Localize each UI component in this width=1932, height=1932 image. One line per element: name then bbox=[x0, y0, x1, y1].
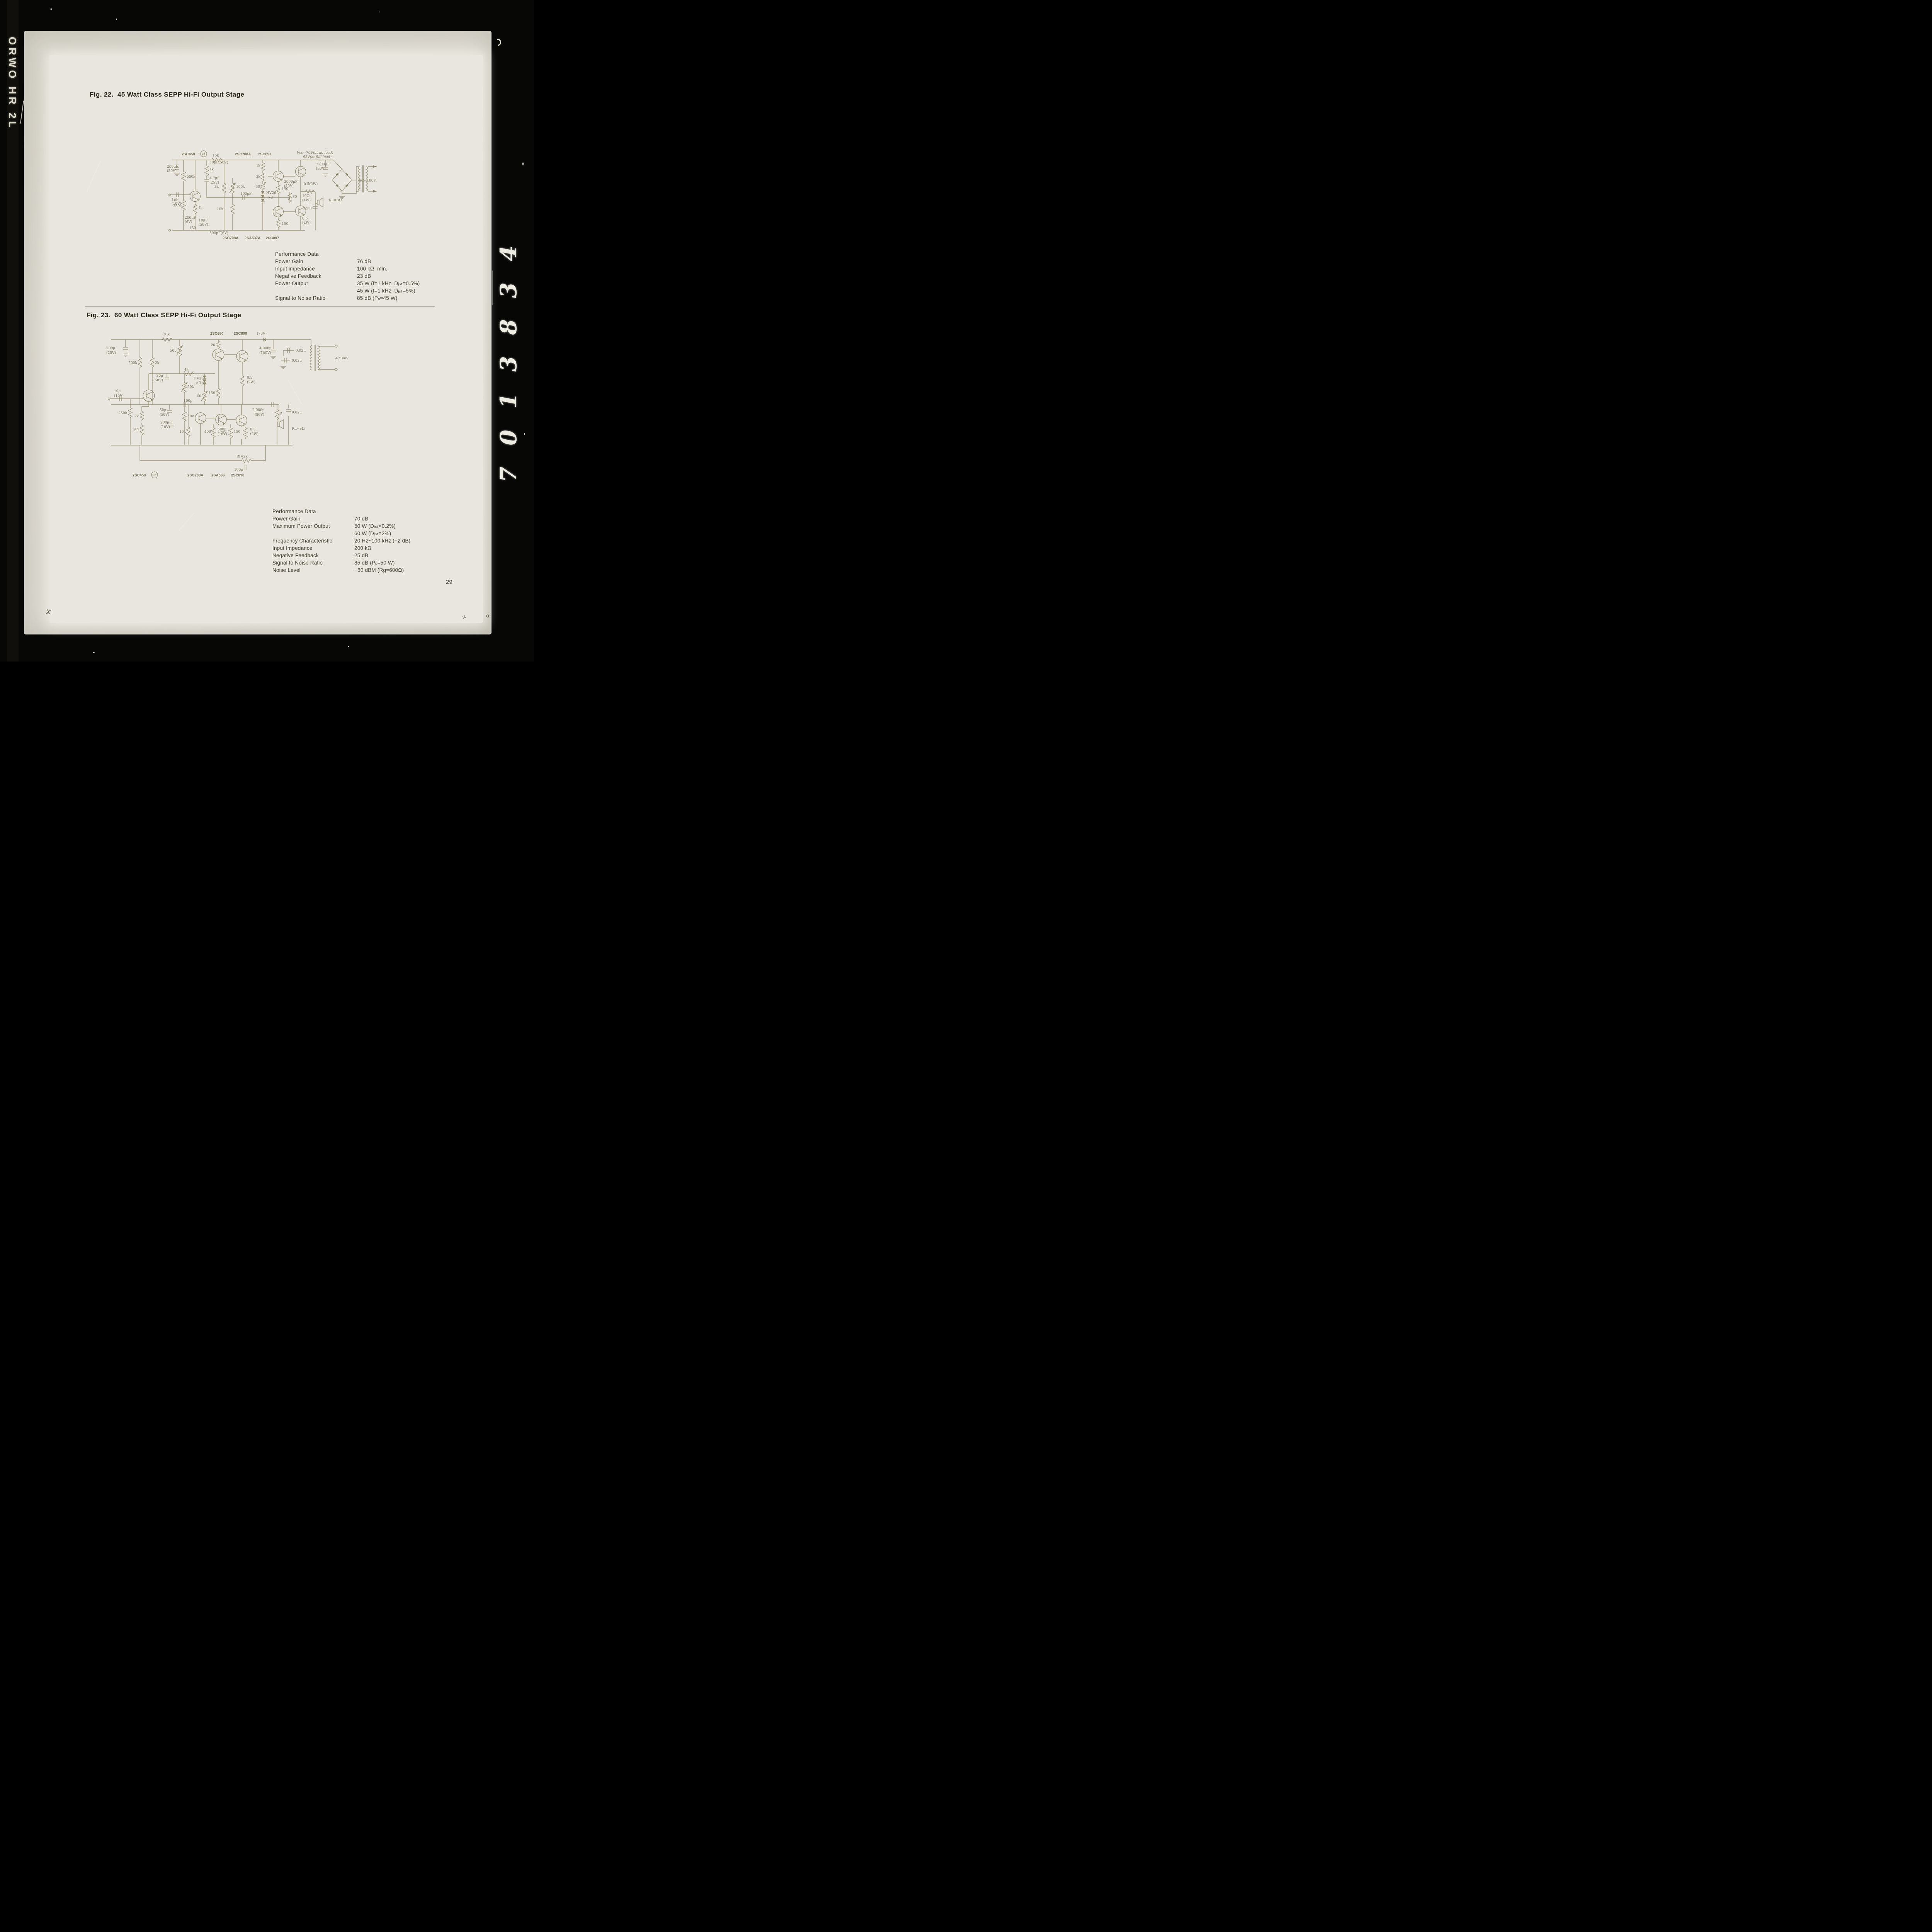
label-200uF: 200μF bbox=[160, 421, 172, 425]
transformer-primary bbox=[359, 167, 361, 179]
label-500u: 500μ bbox=[218, 428, 226, 432]
label-500k: 500k bbox=[187, 175, 196, 179]
label-2k: 2k bbox=[256, 175, 261, 179]
label-2k2: 2k bbox=[134, 415, 139, 418]
label-500: 500 bbox=[170, 349, 177, 353]
capacitor-4000u bbox=[271, 350, 276, 352]
label-ac100: AC=100V bbox=[358, 179, 376, 183]
transistor-2sa537a bbox=[273, 207, 284, 217]
label-4k: 4k bbox=[184, 368, 189, 372]
transistor-2sc680 bbox=[213, 349, 224, 361]
label-15k: 15k bbox=[213, 154, 219, 158]
label-2000u: 2,000μ bbox=[252, 408, 265, 412]
label-2sc898-top: 2SC898 bbox=[234, 332, 247, 336]
label-2000uF: 2000μF bbox=[284, 180, 298, 184]
capacitor-200uF bbox=[170, 425, 174, 427]
label-20: 20 bbox=[211, 344, 216, 347]
label-100pF: 100pF bbox=[240, 192, 252, 196]
transformer-secondary bbox=[366, 167, 368, 179]
film-stock-label: ORWO HR 2L bbox=[6, 37, 18, 130]
pot-arrow-50k bbox=[181, 382, 187, 392]
transistor-2sc898-upper bbox=[236, 350, 248, 362]
label-200u-v: (25V) bbox=[106, 351, 116, 355]
label-250k: 250k bbox=[118, 412, 127, 415]
resistor-5 bbox=[275, 408, 279, 421]
resistor-1k-top bbox=[261, 162, 265, 172]
film-speck bbox=[522, 162, 524, 165]
label-50uF: 50μF(50V) bbox=[209, 160, 228, 165]
film-speck bbox=[93, 652, 95, 653]
perf-row: Power Gain76 dB bbox=[275, 258, 445, 265]
output-arrow bbox=[373, 190, 377, 192]
label-150-right: 150 bbox=[234, 430, 240, 434]
label-rl: RL=8Ω bbox=[329, 199, 342, 202]
page-number: 29 bbox=[446, 579, 452, 585]
capacitor-4.7uF bbox=[204, 179, 209, 181]
label-002c: 0.02μ bbox=[292, 411, 302, 415]
resistor-150-right bbox=[229, 427, 233, 439]
resistor-20 bbox=[216, 340, 220, 349]
film-speck bbox=[379, 12, 380, 12]
label-0.5-b-v: (2W) bbox=[302, 221, 311, 225]
label-50: 50 bbox=[256, 185, 260, 189]
label-rf: Rf=2k bbox=[236, 455, 248, 459]
capacitor-0.02-c bbox=[286, 410, 291, 412]
resistor-0.5-2w-upper bbox=[240, 375, 244, 387]
capacitor-100p-feedback bbox=[245, 465, 247, 470]
label-l6: L6 bbox=[202, 152, 206, 156]
label-bottom-2sc458: 2SC458 bbox=[133, 473, 146, 478]
pot-arrow-500 bbox=[177, 345, 183, 355]
label-500k: 500k bbox=[128, 361, 137, 365]
perf-row: 60 W (Dᵢₛₜ=2%) bbox=[272, 530, 442, 537]
label-150-in: 150 bbox=[189, 226, 196, 230]
resistor-10k bbox=[186, 426, 190, 438]
label-100p-inner: 100p bbox=[184, 399, 192, 403]
label-002b: 0.02μ bbox=[292, 359, 302, 363]
label-2000u-v: (80V) bbox=[255, 413, 264, 417]
label-ac100v: AC100V bbox=[335, 357, 349, 361]
label-1k-c: 1k bbox=[256, 164, 261, 168]
label-1k-b: 1k bbox=[198, 206, 203, 210]
label-500uF: 500μF(6V) bbox=[209, 231, 228, 235]
label-150-b: 150 bbox=[282, 222, 288, 226]
transformer-secondary bbox=[318, 345, 320, 358]
transistor-2sc708a bbox=[195, 413, 206, 423]
resistor-1k-emitter bbox=[193, 203, 197, 215]
perf-row: Frequency Characteristic20 Hz~100 kHz (−… bbox=[272, 537, 442, 544]
transistor-2sc458-input bbox=[143, 390, 155, 401]
perf-row: Signal to Noise Ratio85 dB (Pₒ=45 W) bbox=[275, 294, 445, 302]
label-10k: 10k bbox=[179, 430, 186, 434]
label-0.5-2w-a: 0.5(2W) bbox=[304, 182, 318, 186]
label-30u: 30μ bbox=[156, 374, 163, 378]
bridge-rectifier bbox=[332, 169, 352, 191]
transformer-primary bbox=[310, 345, 312, 358]
transistor-2sc708a-upper bbox=[273, 171, 284, 182]
label-200u: 200μ bbox=[106, 347, 115, 350]
perf-row: Power Gain70 dB bbox=[272, 515, 442, 522]
label-10uF-v: (50V) bbox=[199, 223, 208, 227]
ground-symbol bbox=[174, 173, 180, 175]
resistor-150-upper bbox=[216, 387, 220, 400]
resistor-2k bbox=[150, 356, 154, 369]
label-x3: ×3 bbox=[196, 381, 201, 385]
label-4000u-v: (100V) bbox=[259, 351, 271, 355]
label-100k: 100k bbox=[236, 185, 245, 189]
resistor-2k bbox=[261, 172, 265, 182]
label-10ohm-v: (1W) bbox=[302, 198, 311, 202]
label-60: 60 bbox=[197, 395, 202, 398]
perf-row: Negative Feedback23 dB bbox=[275, 272, 445, 280]
label-4.7uF: 4.7μF bbox=[209, 177, 219, 180]
label-50u: 50μ bbox=[160, 408, 166, 412]
label-2sc708a-top: 2SC708A bbox=[235, 152, 251, 156]
label-150-upper: 150 bbox=[209, 391, 215, 395]
label-05a-v: (2W) bbox=[247, 380, 255, 384]
ac-terminal bbox=[335, 345, 337, 347]
output-arrow bbox=[373, 165, 377, 168]
label-4.7uF-v: (25V) bbox=[209, 180, 219, 185]
label-bottom-2sc708a: 2SC708A bbox=[223, 236, 238, 240]
corner-mark-o: o bbox=[486, 613, 489, 619]
label-200uF-v: (50V) bbox=[167, 169, 177, 173]
resistor-rf bbox=[240, 459, 253, 463]
resistor-10k bbox=[231, 203, 235, 216]
fig23-title: Fig. 23. 60 Watt Class SEPP Hi-Fi Output… bbox=[87, 311, 241, 319]
film-frame-number-handwritten: 7013834 bbox=[495, 224, 522, 483]
film-scratch bbox=[20, 100, 24, 124]
resistor-150-upper bbox=[276, 184, 280, 195]
transistor-2sc898-lower bbox=[236, 415, 247, 426]
input-terminal bbox=[108, 398, 110, 400]
performance-heading: Performance Data bbox=[272, 508, 442, 515]
perf-row: Signal to Noise Ratio85 dB (Pₒ=50 W) bbox=[272, 559, 442, 566]
document-page: Fig. 22. 45 Watt Class SEPP Hi-Fi Output… bbox=[24, 31, 492, 634]
label-10u: 10μ bbox=[114, 389, 121, 393]
label-4000u: 4,000μ bbox=[259, 347, 272, 350]
film-scratch bbox=[492, 270, 493, 305]
label-50k-a: 50k bbox=[187, 385, 194, 389]
performance-heading: Performance Data bbox=[275, 250, 445, 258]
perf-row: Maximum Power Output50 W (Dᵢₛₜ=0.2%) bbox=[272, 522, 442, 530]
rail-diode bbox=[264, 338, 266, 342]
label-2sc680: 2SC680 bbox=[210, 332, 223, 336]
diode-hv26-3 bbox=[202, 383, 206, 385]
film-speck bbox=[116, 19, 117, 20]
label-bottom-l6: L6 bbox=[153, 473, 156, 477]
label-76v: (76V) bbox=[257, 332, 267, 336]
fig22-title: Fig. 22. 45 Watt Class SEPP Hi-Fi Output… bbox=[90, 91, 244, 99]
resistor-3k bbox=[222, 182, 226, 194]
resistor-50k-b bbox=[182, 410, 186, 423]
speaker-symbol bbox=[278, 420, 284, 429]
film-speck bbox=[524, 433, 525, 435]
resistor-500k bbox=[182, 170, 185, 183]
label-2200uF-v: (80V) bbox=[316, 167, 326, 171]
label-500u-v: (10V) bbox=[218, 432, 227, 436]
resistor-150-lower bbox=[276, 219, 280, 228]
resistor-500k bbox=[138, 356, 142, 369]
film-photo-frame: ORWO HR 2L 7013834 Fig. 22. 45 Watt Clas… bbox=[0, 0, 534, 662]
capacitor-50u bbox=[167, 410, 172, 412]
resistor-250k bbox=[128, 406, 132, 419]
perf-row: 45 W (f=1 kHz, Dᵢₛₜ=5%) bbox=[275, 287, 445, 294]
ac-terminal bbox=[335, 368, 337, 371]
ground-symbol bbox=[323, 174, 328, 176]
film-speck bbox=[50, 9, 52, 10]
perf-row: Input Impedance200 kΩ bbox=[272, 544, 442, 552]
diode-hv26-1 bbox=[261, 191, 265, 194]
fig22-performance: Performance Data Power Gain76 dB Input i… bbox=[275, 250, 445, 302]
fig22-schematic: 2SC458 L6 15k 2SC708A 2SC897 Vcc=70V(at … bbox=[166, 149, 377, 244]
label-05b: 0.5 bbox=[250, 428, 256, 432]
perf-row: Negative Feedback25 dB bbox=[272, 552, 442, 559]
label-vcc-line2: 62V(at full load) bbox=[303, 155, 332, 159]
transformer-primary2 bbox=[310, 358, 312, 370]
label-200uF-v: (10V) bbox=[160, 425, 170, 429]
perf-row: Noise Level−80 dBM (Rg=600Ω) bbox=[272, 566, 442, 574]
label-10u-v: (10V) bbox=[114, 394, 124, 398]
resistor-2k-emitter bbox=[140, 410, 144, 421]
label-05a: 0.5 bbox=[247, 376, 253, 380]
label-30u-v: (50V) bbox=[153, 378, 163, 383]
capacitor-30u bbox=[165, 377, 169, 379]
perf-row: Input impedance100 kΩ min. bbox=[275, 265, 445, 272]
ground-symbol bbox=[270, 356, 276, 359]
label-bottom-2sa537a: 2SA537A bbox=[245, 236, 260, 240]
label-10k: 10k bbox=[217, 207, 223, 211]
label-x3: ×3 bbox=[268, 196, 273, 200]
section-divider bbox=[85, 306, 435, 307]
label-2sc458: 2SC458 bbox=[182, 152, 195, 156]
perf-row: Power Output35 W (f=1 kHz, Dᵢₛₜ=0.5%) bbox=[275, 280, 445, 287]
label-bottom-2sc898: 2SC898 bbox=[231, 473, 244, 478]
label-100p-feedback: 100p bbox=[234, 468, 243, 472]
label-200uF: 200μF bbox=[167, 165, 178, 169]
fig23-schematic: 200μ (25V) 500k 2k 20k 500 4k 30μ (50V) … bbox=[103, 329, 350, 481]
transistor-2sc897-upper bbox=[296, 167, 306, 177]
transistor-2sa566 bbox=[216, 414, 226, 425]
label-50u-v: (50V) bbox=[160, 413, 169, 417]
speaker-symbol bbox=[317, 198, 323, 207]
transistor-2sc458 bbox=[190, 191, 201, 202]
label-200uF6: 200μF bbox=[185, 216, 196, 220]
label-rl: RL=8Ω bbox=[292, 427, 304, 431]
label-1k-a: 1k bbox=[209, 168, 214, 172]
ground-symbol bbox=[123, 354, 128, 356]
label-200uF6-v: (6V) bbox=[185, 220, 192, 224]
label-10ohm: 10Ω bbox=[302, 194, 310, 198]
label-250k: 250k bbox=[173, 204, 182, 208]
label-bottom-2sc708a: 2SC708A bbox=[187, 473, 203, 478]
resistor-250k bbox=[182, 199, 185, 212]
label-0.5-b: 0.5 bbox=[302, 217, 308, 221]
label-50k-b: 50k bbox=[187, 415, 194, 418]
capacitor-200u bbox=[123, 348, 128, 350]
input-terminal-gnd bbox=[169, 230, 171, 231]
label-bottom-2sa566: 2SA566 bbox=[211, 473, 224, 478]
label-bottom-2sc897: 2SC897 bbox=[266, 236, 279, 240]
label-2200uF: 2200μF bbox=[316, 163, 330, 167]
label-10uF: 10μF bbox=[199, 219, 208, 223]
resistor-400 bbox=[211, 427, 215, 439]
transformer-secondary2 bbox=[318, 358, 320, 370]
label-0.5uF: 0.5μF bbox=[303, 207, 313, 211]
label-1uF: 1μF bbox=[172, 198, 179, 202]
label-2k: 2k bbox=[155, 361, 160, 365]
resistor-1k bbox=[205, 165, 209, 177]
film-scratch-curl bbox=[492, 37, 502, 47]
label-002a: 0.02μ bbox=[296, 349, 306, 353]
pot-arrow-60 bbox=[201, 391, 207, 401]
label-20k: 20k bbox=[163, 333, 170, 337]
label-400: 400 bbox=[204, 430, 211, 434]
label-30: 30 bbox=[293, 195, 297, 199]
ground-symbol bbox=[281, 366, 286, 369]
diode-hv26-3 bbox=[261, 199, 265, 202]
label-2sc897-top: 2SC897 bbox=[258, 152, 271, 156]
label-5: 5 bbox=[280, 412, 282, 416]
pot-arrow-100k bbox=[230, 183, 236, 193]
film-speck bbox=[348, 646, 349, 647]
resistor-0.5-2w-lower bbox=[243, 427, 247, 439]
label-2000uF-v: (40V) bbox=[284, 184, 294, 188]
label-05b-v: (2W) bbox=[250, 432, 259, 436]
fig23-performance: Performance Data Power Gain70 dB Maximum… bbox=[272, 508, 442, 574]
label-hv26: HV26 bbox=[194, 377, 204, 381]
label-3k: 3k bbox=[214, 185, 219, 189]
label-hv26: HV26 bbox=[266, 191, 276, 195]
label-vcc-line1: Vcc=70V(at no load) bbox=[297, 151, 333, 155]
resistor-150-left bbox=[140, 424, 144, 436]
label-150-left: 150 bbox=[132, 429, 139, 432]
